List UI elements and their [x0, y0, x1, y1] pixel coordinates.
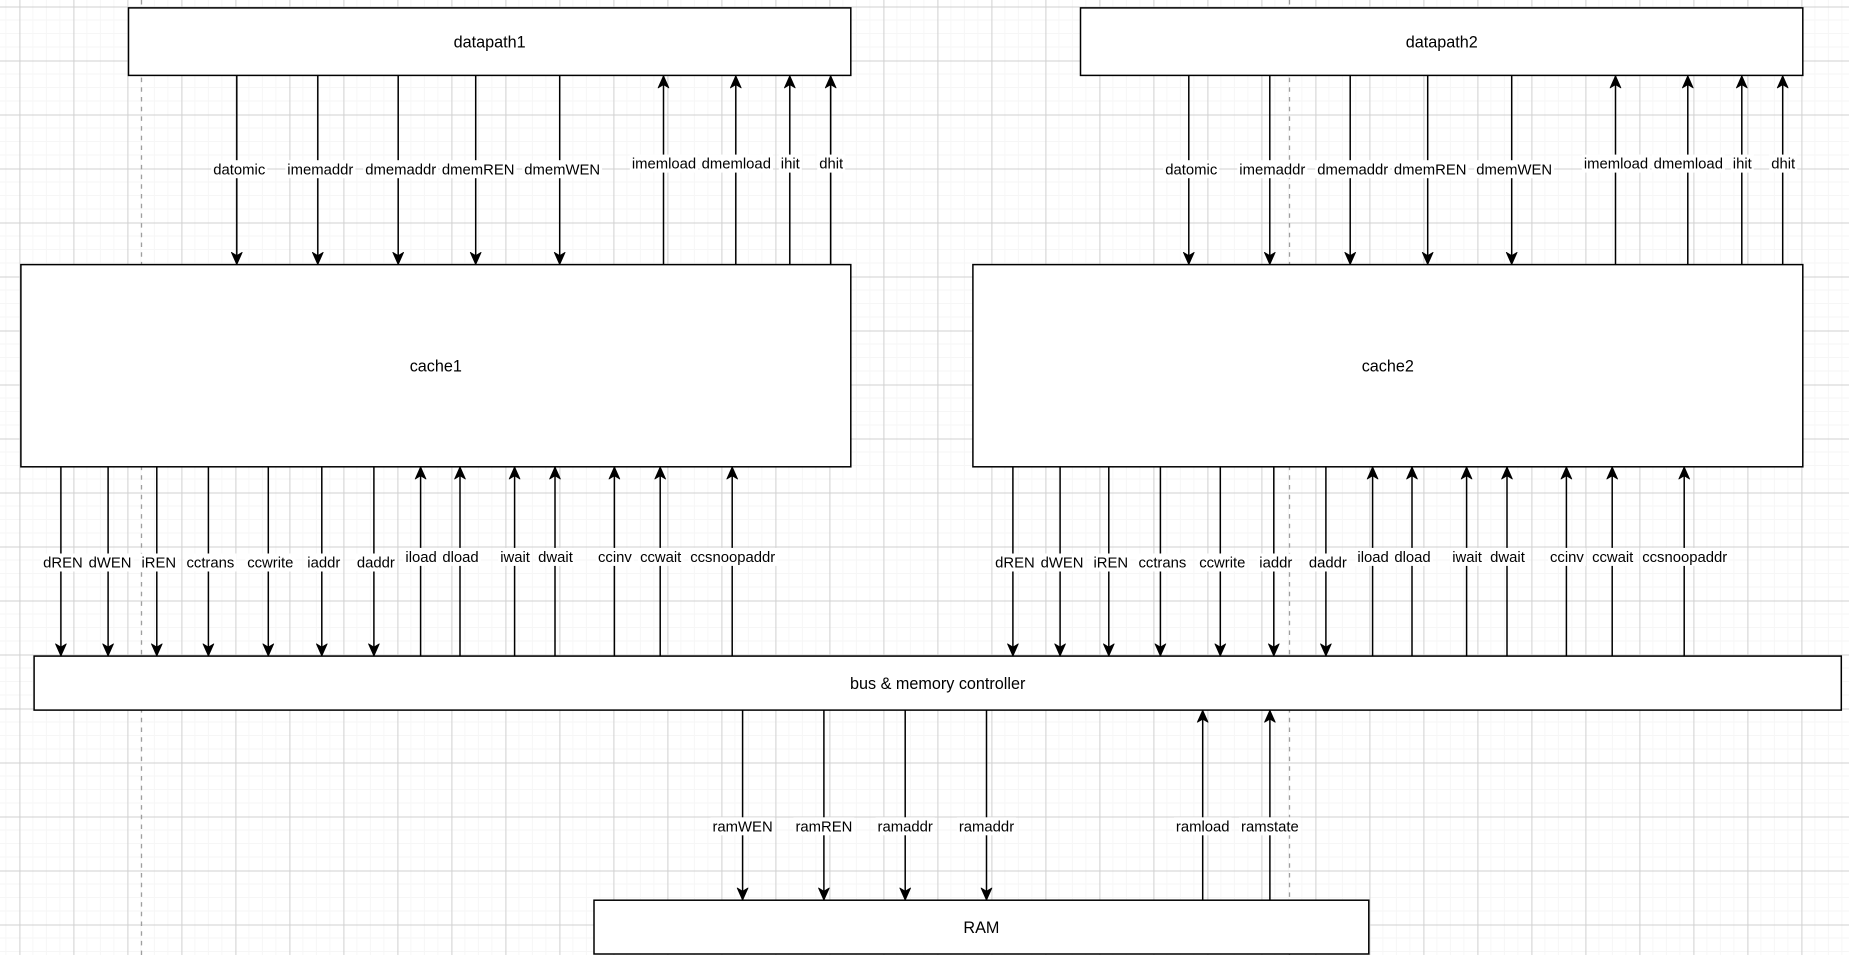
svg-text:iaddr: iaddr: [1259, 556, 1292, 572]
svg-text:bus & memory controller: bus & memory controller: [850, 675, 1026, 693]
svg-text:cache1: cache1: [410, 357, 462, 375]
svg-text:cache2: cache2: [1362, 357, 1414, 375]
svg-text:ccwait: ccwait: [640, 550, 682, 566]
svg-text:dmemREN: dmemREN: [1394, 162, 1467, 178]
svg-text:dhit: dhit: [819, 157, 844, 173]
svg-text:dload: dload: [442, 550, 478, 566]
svg-text:imemaddr: imemaddr: [287, 162, 353, 178]
svg-text:ccinv: ccinv: [598, 550, 632, 566]
svg-text:imemload: imemload: [632, 157, 696, 173]
svg-text:ccwrite: ccwrite: [247, 556, 293, 572]
svg-text:dwait: dwait: [538, 550, 574, 566]
svg-text:iwait: iwait: [1452, 550, 1483, 566]
svg-text:cctrans: cctrans: [1138, 556, 1186, 572]
svg-text:ramaddr: ramaddr: [878, 819, 933, 835]
svg-text:ihit: ihit: [781, 157, 801, 173]
svg-text:dmemREN: dmemREN: [442, 162, 515, 178]
svg-text:daddr: daddr: [1309, 556, 1347, 572]
svg-text:imemaddr: imemaddr: [1239, 162, 1305, 178]
svg-text:iREN: iREN: [141, 556, 176, 572]
svg-text:dREN: dREN: [43, 556, 83, 572]
svg-text:iload: iload: [405, 550, 436, 566]
svg-text:ramaddr: ramaddr: [959, 819, 1014, 835]
svg-text:dload: dload: [1394, 550, 1430, 566]
svg-text:ccwait: ccwait: [1592, 550, 1634, 566]
svg-text:iaddr: iaddr: [307, 556, 340, 572]
svg-text:iwait: iwait: [500, 550, 531, 566]
svg-text:datapath1: datapath1: [454, 33, 526, 51]
svg-text:daddr: daddr: [357, 556, 395, 572]
svg-text:ramstate: ramstate: [1241, 819, 1299, 835]
svg-text:RAM: RAM: [963, 919, 999, 937]
svg-text:dmemWEN: dmemWEN: [1476, 162, 1552, 178]
svg-text:datapath2: datapath2: [1406, 33, 1478, 51]
svg-text:ramREN: ramREN: [795, 819, 852, 835]
svg-text:ccwrite: ccwrite: [1199, 556, 1245, 572]
svg-text:datomic: datomic: [1165, 162, 1218, 178]
svg-text:ccsnoopaddr: ccsnoopaddr: [690, 550, 775, 566]
svg-text:cctrans: cctrans: [186, 556, 234, 572]
svg-text:iREN: iREN: [1093, 556, 1128, 572]
svg-text:imemload: imemload: [1584, 157, 1648, 173]
svg-text:datomic: datomic: [213, 162, 266, 178]
svg-text:dmemWEN: dmemWEN: [524, 162, 600, 178]
svg-text:iload: iload: [1357, 550, 1388, 566]
svg-text:dWEN: dWEN: [1041, 556, 1084, 572]
svg-text:dmemload: dmemload: [1654, 157, 1723, 173]
svg-text:dhit: dhit: [1771, 157, 1796, 173]
svg-text:ccinv: ccinv: [1550, 550, 1584, 566]
svg-text:dREN: dREN: [995, 556, 1035, 572]
svg-text:ramWEN: ramWEN: [712, 819, 772, 835]
svg-text:dmemload: dmemload: [702, 157, 771, 173]
svg-text:ccsnoopaddr: ccsnoopaddr: [1642, 550, 1727, 566]
svg-text:dwait: dwait: [1490, 550, 1526, 566]
svg-text:ihit: ihit: [1733, 157, 1753, 173]
svg-text:dmemaddr: dmemaddr: [1317, 162, 1388, 178]
svg-text:ramload: ramload: [1176, 819, 1230, 835]
svg-text:dWEN: dWEN: [89, 556, 132, 572]
svg-text:dmemaddr: dmemaddr: [365, 162, 436, 178]
